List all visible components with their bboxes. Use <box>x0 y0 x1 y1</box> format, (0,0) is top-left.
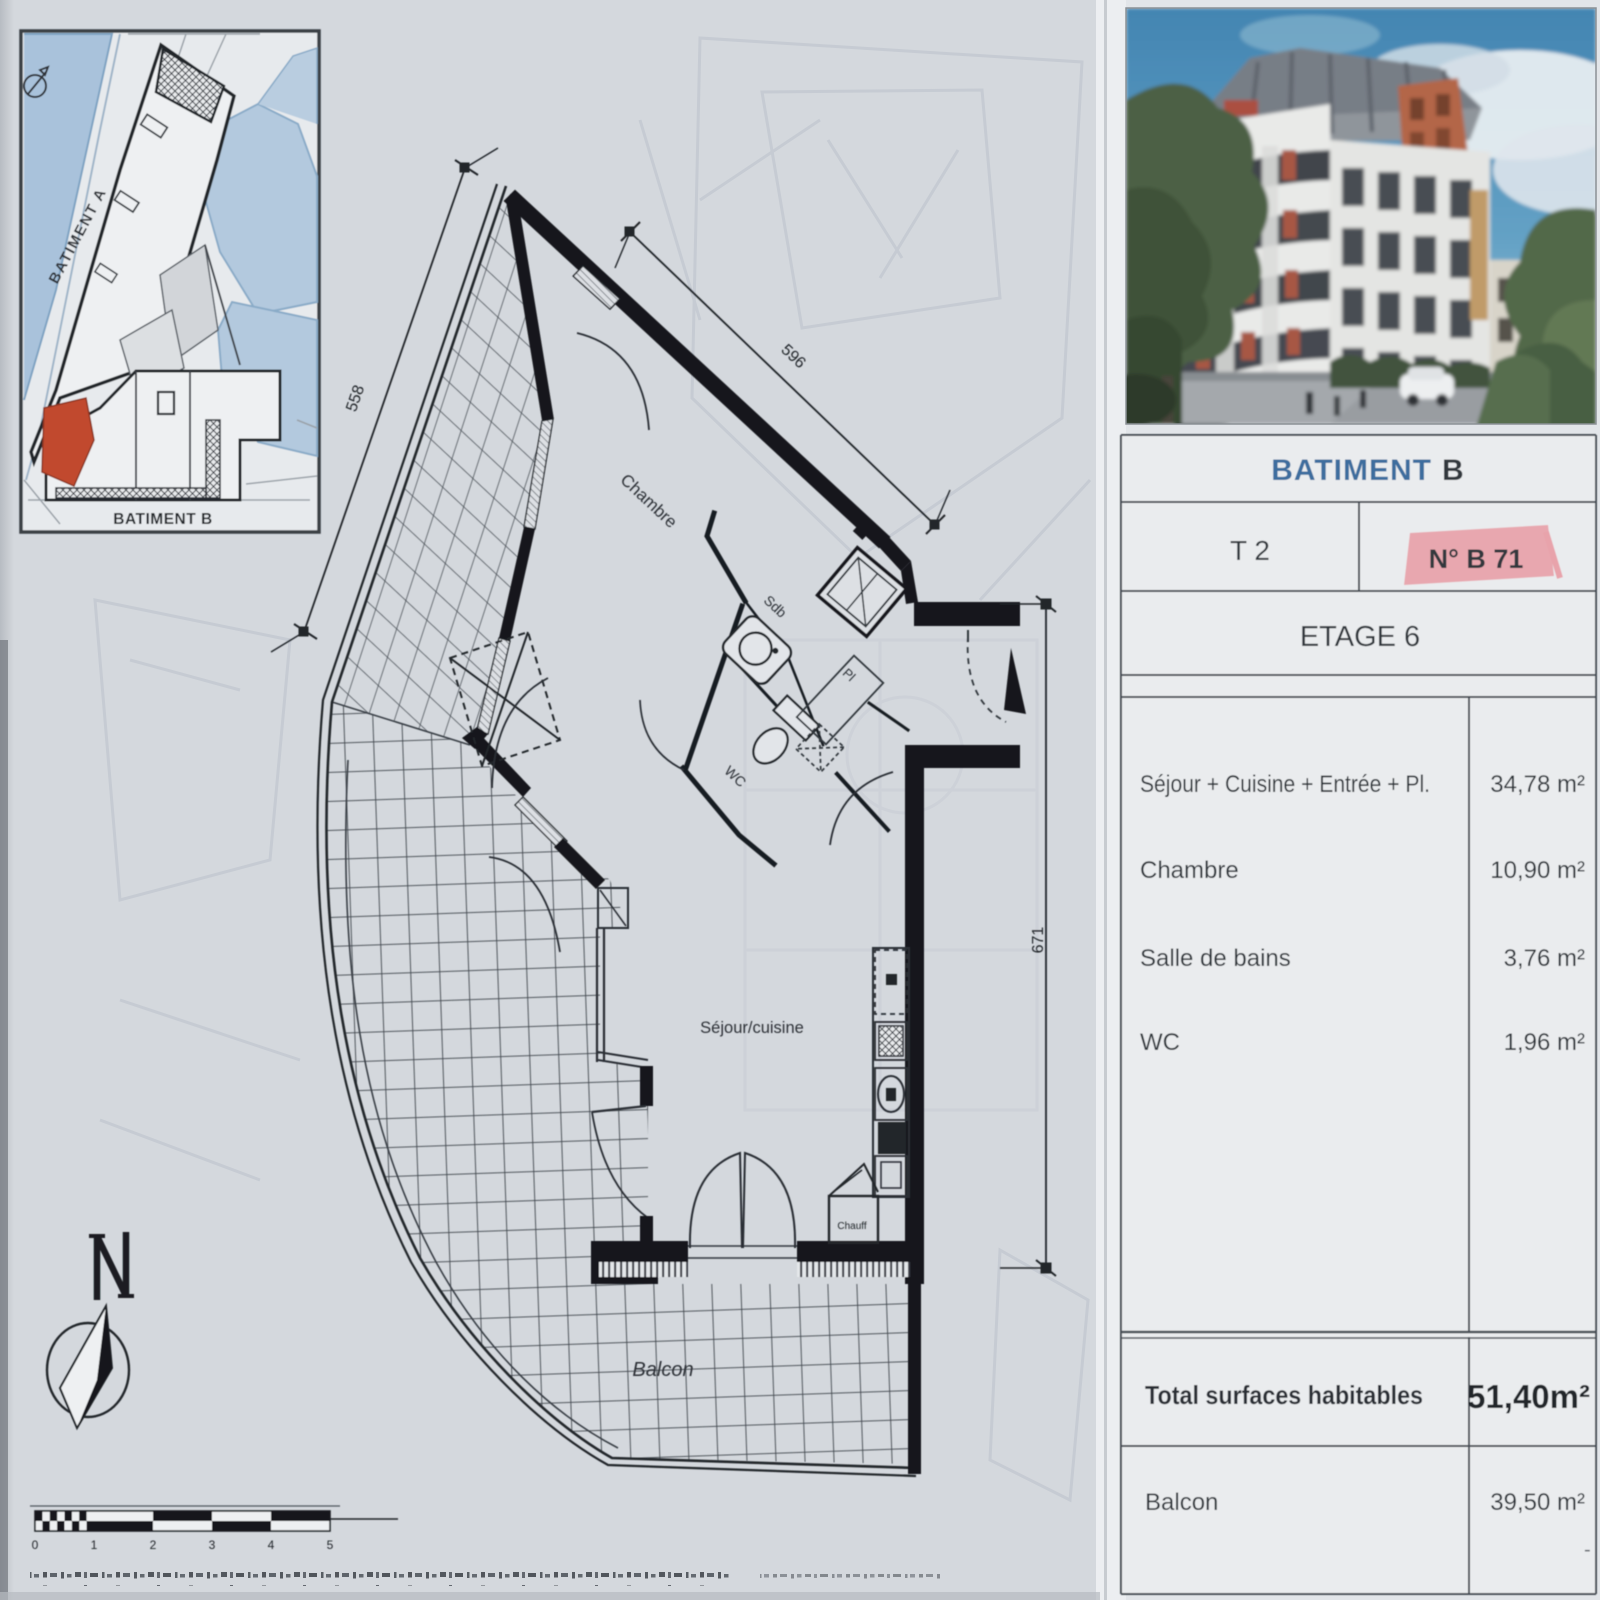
svg-text:Total surfaces habitables: Total surfaces habitables <box>1145 1380 1423 1410</box>
svg-text:3: 3 <box>209 1538 216 1552</box>
svg-text:Balcon: Balcon <box>1145 1489 1218 1516</box>
svg-text:Chauff: Chauff <box>837 1221 867 1232</box>
svg-text:671: 671 <box>1030 927 1047 954</box>
svg-text:5: 5 <box>327 1538 334 1552</box>
svg-text:10,90 m²: 10,90 m² <box>1490 857 1585 884</box>
svg-text:Séjour/cuisine: Séjour/cuisine <box>700 1019 804 1037</box>
svg-text:39,50 m²: 39,50 m² <box>1490 1489 1585 1516</box>
svg-text:2: 2 <box>150 1538 157 1552</box>
svg-text:-: - <box>1584 1539 1591 1561</box>
svg-text:N° B 71: N° B 71 <box>1429 544 1524 574</box>
svg-text:34,78 m²: 34,78 m² <box>1490 771 1585 798</box>
svg-text:BATIMENT B: BATIMENT B <box>113 511 212 528</box>
svg-text:ETAGE 6: ETAGE 6 <box>1300 621 1420 653</box>
svg-text:BATIMENT: BATIMENT <box>1271 454 1432 487</box>
svg-text:51,40m²: 51,40m² <box>1467 1378 1590 1415</box>
svg-text:Chambre: Chambre <box>1140 857 1239 884</box>
svg-text:Balcon: Balcon <box>632 1359 693 1381</box>
svg-text:4: 4 <box>268 1538 275 1552</box>
svg-text:WC: WC <box>1140 1029 1180 1056</box>
svg-text:Salle de bains: Salle de bains <box>1140 945 1291 972</box>
svg-text:3,76 m²: 3,76 m² <box>1504 945 1585 972</box>
svg-text:T 2: T 2 <box>1230 535 1270 566</box>
svg-text:Séjour + Cuisine + Entrée + Pl: Séjour + Cuisine + Entrée + Pl. <box>1140 771 1430 798</box>
svg-text:1: 1 <box>91 1538 98 1552</box>
svg-text:1,96 m²: 1,96 m² <box>1504 1029 1585 1056</box>
svg-text:0: 0 <box>32 1538 39 1552</box>
svg-text:B: B <box>1442 454 1464 487</box>
